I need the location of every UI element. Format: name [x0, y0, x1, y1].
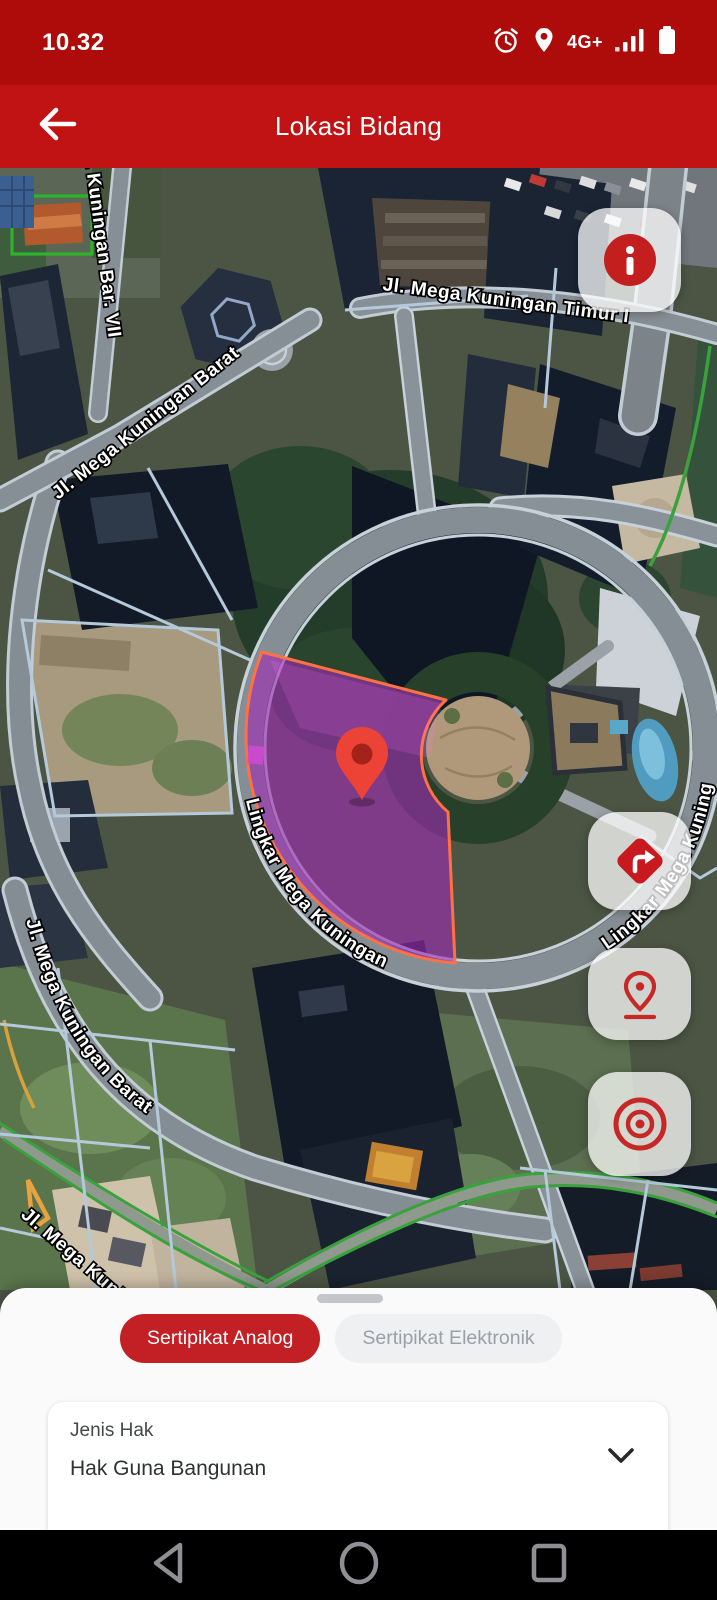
android-back-icon	[146, 1538, 190, 1593]
network-type-label: 4G+	[567, 32, 603, 53]
status-time: 10.32	[42, 29, 105, 57]
status-icons: 4G+	[491, 24, 677, 61]
android-nav-bar	[0, 1530, 717, 1600]
android-back-button[interactable]	[140, 1537, 196, 1593]
page-title: Lokasi Bidang	[0, 111, 717, 142]
pin-drop-button[interactable]	[588, 948, 691, 1040]
field-label: Jenis Hak	[70, 1420, 646, 1442]
satellite-map[interactable]: Jl. Mega Kuningan Bar. VII Jl. Mega Kuni…	[0, 168, 717, 1290]
status-bar: 10.32 4G+	[0, 0, 717, 85]
my-location-button[interactable]	[588, 1072, 691, 1176]
tab-sertipikat-elektronik[interactable]: Sertipikat Elektronik	[335, 1314, 561, 1363]
alarm-icon	[491, 25, 521, 60]
field-value: Hak Guna Bangunan	[70, 1457, 646, 1481]
tab-sertipikat-analog[interactable]: Sertipikat Analog	[120, 1314, 320, 1363]
android-home-icon	[335, 1538, 383, 1593]
android-recents-button[interactable]	[521, 1537, 577, 1593]
app-header: Lokasi Bidang	[0, 85, 717, 168]
parcel-corner-mark	[247, 745, 265, 764]
back-button[interactable]	[22, 85, 92, 168]
chevron-down-icon	[604, 1444, 638, 1473]
info-icon	[603, 233, 657, 287]
directions-button[interactable]	[588, 812, 691, 910]
signal-strength-icon	[613, 26, 647, 59]
drag-handle[interactable]	[317, 1294, 383, 1303]
battery-icon	[657, 24, 677, 61]
phone-screen: 10.32 4G+	[0, 0, 717, 1600]
location-icon	[531, 25, 557, 60]
pin-drop-icon	[611, 965, 669, 1023]
back-arrow-icon	[34, 104, 80, 149]
parcel-info-button[interactable]	[578, 208, 681, 312]
android-home-button[interactable]	[331, 1537, 387, 1593]
directions-icon	[609, 830, 671, 892]
target-icon	[610, 1094, 670, 1154]
android-recents-icon	[527, 1538, 571, 1593]
certificate-type-tabs: Sertipikat Analog Sertipikat Elektronik	[120, 1314, 562, 1363]
